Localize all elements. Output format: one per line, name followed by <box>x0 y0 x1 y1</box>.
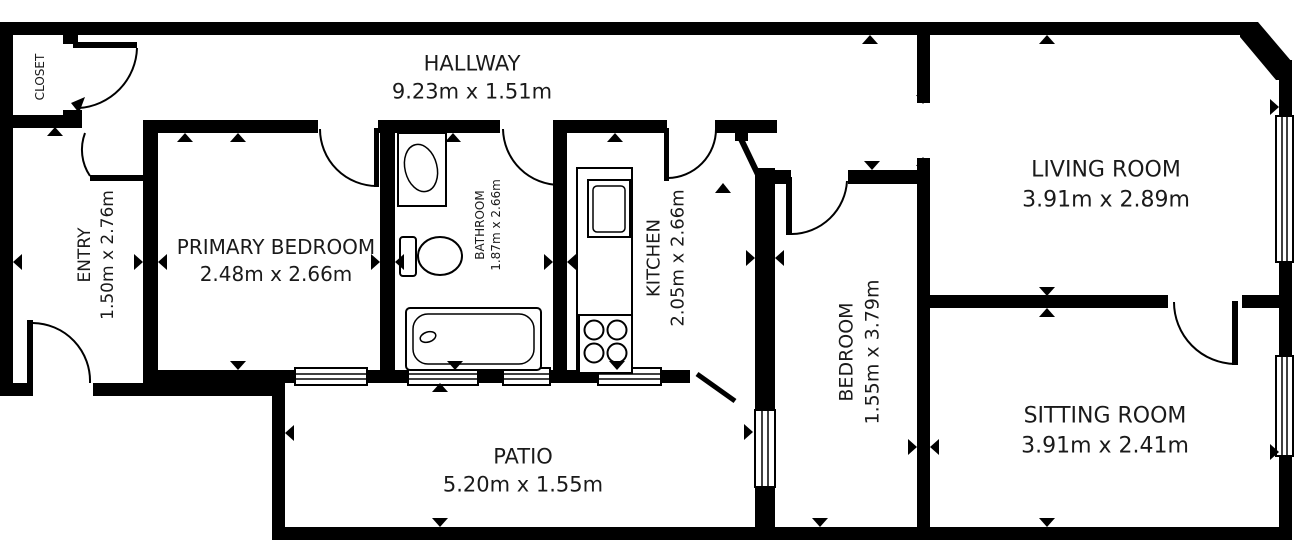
closet-door-leaf <box>73 42 137 48</box>
marker-triangle <box>230 133 246 142</box>
closet-door-arc <box>79 48 137 108</box>
floor-plan: CLOSET HALLWAY 9.23m x 1.51m ENTRY 1.50m… <box>0 0 1306 556</box>
marker-triangle <box>1270 99 1279 115</box>
kitchen-door-arc <box>668 129 716 178</box>
bedroom-door <box>786 177 847 235</box>
marker-triangle <box>134 254 143 270</box>
walls <box>0 22 1292 540</box>
wall-hallway-south-1 <box>143 120 318 133</box>
wall-patio-north-b <box>367 370 408 383</box>
fixtures <box>398 133 632 373</box>
bedroom-door-leaf <box>786 177 792 235</box>
sitting-room-window <box>1276 356 1293 456</box>
toilet <box>400 237 462 276</box>
sitting-room-door-arc <box>1174 302 1235 364</box>
floor-plan-drawing <box>0 0 1306 556</box>
vestibule-door-leaf <box>740 137 762 183</box>
entry-exterior-door-leaf <box>27 320 33 383</box>
wall-hallway-south-4 <box>715 120 777 133</box>
wall-patio-north-c <box>478 370 503 383</box>
sitting-room-door-leaf <box>1232 301 1238 365</box>
marker-triangle <box>230 361 246 370</box>
kitchen-door-leaf <box>664 128 669 181</box>
wall-entry-bedroom <box>143 120 158 396</box>
entry-hall-door-leaf <box>90 175 143 181</box>
patio-door-leaf <box>697 374 735 401</box>
marker-triangle <box>862 35 878 44</box>
marker-triangle <box>1039 518 1055 527</box>
marker-triangle <box>1039 35 1055 44</box>
closet-door <box>71 42 137 113</box>
bathtub <box>406 308 541 370</box>
marker-triangle <box>371 254 380 270</box>
wall-hallway-south-3 <box>558 120 667 133</box>
stove-burners <box>579 315 632 373</box>
wall-bedroom-bathroom <box>380 120 395 383</box>
marker-triangle <box>285 425 294 441</box>
entry-hall-door-arc <box>82 133 90 176</box>
bathroom-sink <box>398 133 446 206</box>
marker-triangle <box>13 254 22 270</box>
marker-triangle <box>930 439 939 455</box>
bathroom-door-leaf <box>557 128 562 185</box>
marker-triangle <box>158 254 167 270</box>
marker-triangle <box>744 424 753 440</box>
primary-bedroom-door-leaf <box>374 128 379 187</box>
sitting-room-door <box>1174 301 1238 365</box>
wall-markers <box>13 35 1279 527</box>
entry-exterior-door-arc <box>33 323 90 383</box>
wall-bedroom-sitting <box>917 158 930 530</box>
oven <box>588 180 630 237</box>
primary-bedroom-door-arc <box>320 129 377 186</box>
marker-triangle <box>432 518 448 527</box>
marker-triangle <box>47 127 63 136</box>
wall-outer-left <box>0 22 13 396</box>
patio-bedroom-window <box>755 410 775 487</box>
wall-hall-living-upper <box>917 35 930 103</box>
wall-outer-bottom <box>272 527 1292 540</box>
entry-hall-door <box>82 133 143 181</box>
wall-hallway-south-2 <box>378 120 500 133</box>
marker-triangle <box>177 133 193 142</box>
marker-triangle <box>746 250 755 266</box>
wall-kitchen-bedroom <box>755 168 775 410</box>
marker-triangle <box>908 439 917 455</box>
wall-living-sitting-a <box>930 295 1168 308</box>
bedroom-door-arc <box>792 181 847 234</box>
kitchen-door <box>664 128 716 181</box>
bathroom-door-arc <box>503 129 560 185</box>
wall-patio-north-a <box>143 370 295 383</box>
primary-bedroom-door <box>320 128 379 187</box>
marker-triangle <box>775 250 784 266</box>
marker-triangle <box>1039 308 1055 317</box>
marker-triangle <box>544 254 553 270</box>
wall-patio-left <box>272 388 285 540</box>
marker-triangle <box>567 254 576 270</box>
marker-triangle <box>715 183 731 193</box>
marker-triangle <box>1039 287 1055 296</box>
wall-entry-bottom-b <box>93 383 285 396</box>
living-room-window <box>1276 116 1293 262</box>
wall-closet-jamb-bottom <box>63 110 82 128</box>
marker-triangle <box>864 161 880 170</box>
wall-living-sitting-b <box>1242 295 1279 308</box>
wall-outer-top <box>5 22 1248 35</box>
wall-patio-north-e <box>661 370 690 383</box>
marker-triangle <box>607 133 623 142</box>
primary-bedroom-window <box>295 368 367 385</box>
entry-exterior-door <box>27 320 90 383</box>
wall-closet-bottom <box>13 115 63 128</box>
marker-triangle <box>812 518 828 527</box>
wall-patio-bedroom-lower <box>755 487 775 531</box>
marker-triangle <box>445 133 461 142</box>
